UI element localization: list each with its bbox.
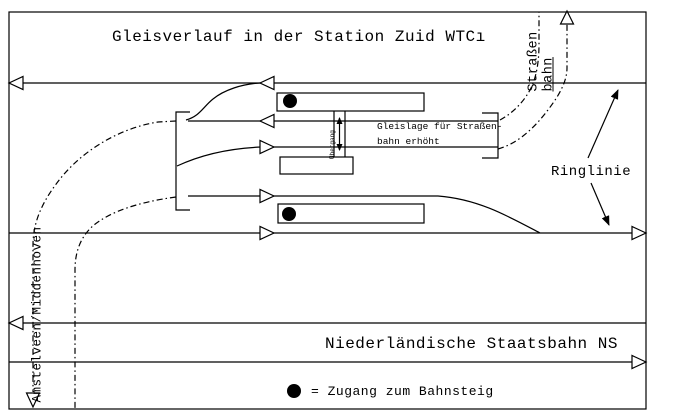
ns-caption: Niederländische Staatsbahn NS — [325, 336, 618, 352]
tram-route-amstelveen-outbound — [33, 121, 176, 392]
direction-triangle-right-icon — [632, 356, 646, 369]
platform-south — [278, 204, 424, 223]
platform-access-dot — [287, 384, 301, 398]
legend-text: = Zugang zum Bahnsteig — [311, 385, 494, 398]
strassenbahn-label-line2: bahn — [543, 57, 557, 91]
strassenbahn-label-line1: Straßen — [528, 31, 542, 91]
tram-route-amstelveen-inbound — [75, 197, 176, 409]
platform-middle — [280, 157, 353, 174]
direction-triangle-right-icon — [260, 227, 274, 240]
ringlinie-pointer-south — [591, 183, 609, 225]
ringlinie-label: Ringlinie — [551, 165, 631, 179]
elevated-note-line1: Gleislage für Straßen- — [377, 122, 502, 132]
diagram-drawing — [0, 0, 679, 420]
diagram-title: Gleisverlauf in der Station Zuid WTCı — [112, 29, 486, 45]
track-diagram: Gleisverlauf in der Station Zuid WTCı St… — [0, 0, 679, 420]
elevated-note-line2: bahn erhöht — [377, 137, 440, 147]
direction-triangle-right-icon — [260, 190, 274, 203]
direction-triangle-left-icon — [260, 77, 274, 90]
direction-triangle-left-icon — [9, 77, 23, 90]
elevated-section-right-bracket — [482, 113, 498, 158]
ringlinie-pointer-north — [588, 90, 618, 158]
amstelveen-route-label: Amstelveen/Middenhoven — [32, 226, 45, 402]
direction-triangle-up-icon — [561, 11, 574, 24]
direction-triangle-left-icon — [9, 317, 23, 330]
direction-triangle-left-icon — [260, 115, 274, 128]
platform-access-dot — [283, 94, 297, 108]
crossing-label: Übergang — [330, 130, 336, 159]
direction-triangle-right-icon — [632, 227, 646, 240]
platform-north — [277, 93, 424, 111]
platform-access-dot — [282, 207, 296, 221]
direction-triangle-right-icon — [260, 141, 274, 154]
junction-curve-north — [186, 83, 260, 120]
